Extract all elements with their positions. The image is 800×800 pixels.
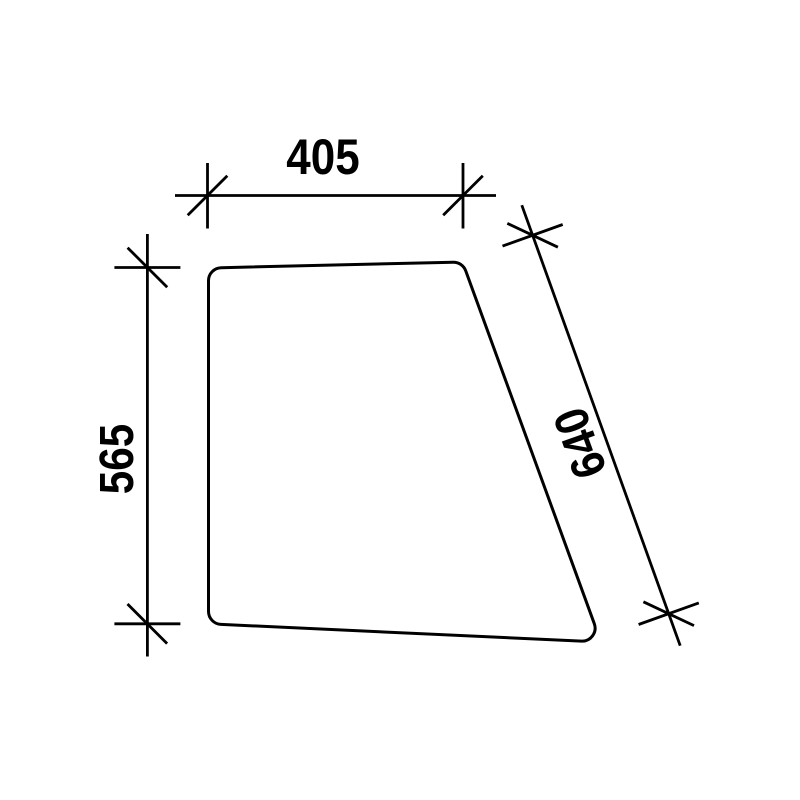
- svg-text:405: 405: [286, 128, 359, 184]
- svg-text:565: 565: [89, 424, 143, 494]
